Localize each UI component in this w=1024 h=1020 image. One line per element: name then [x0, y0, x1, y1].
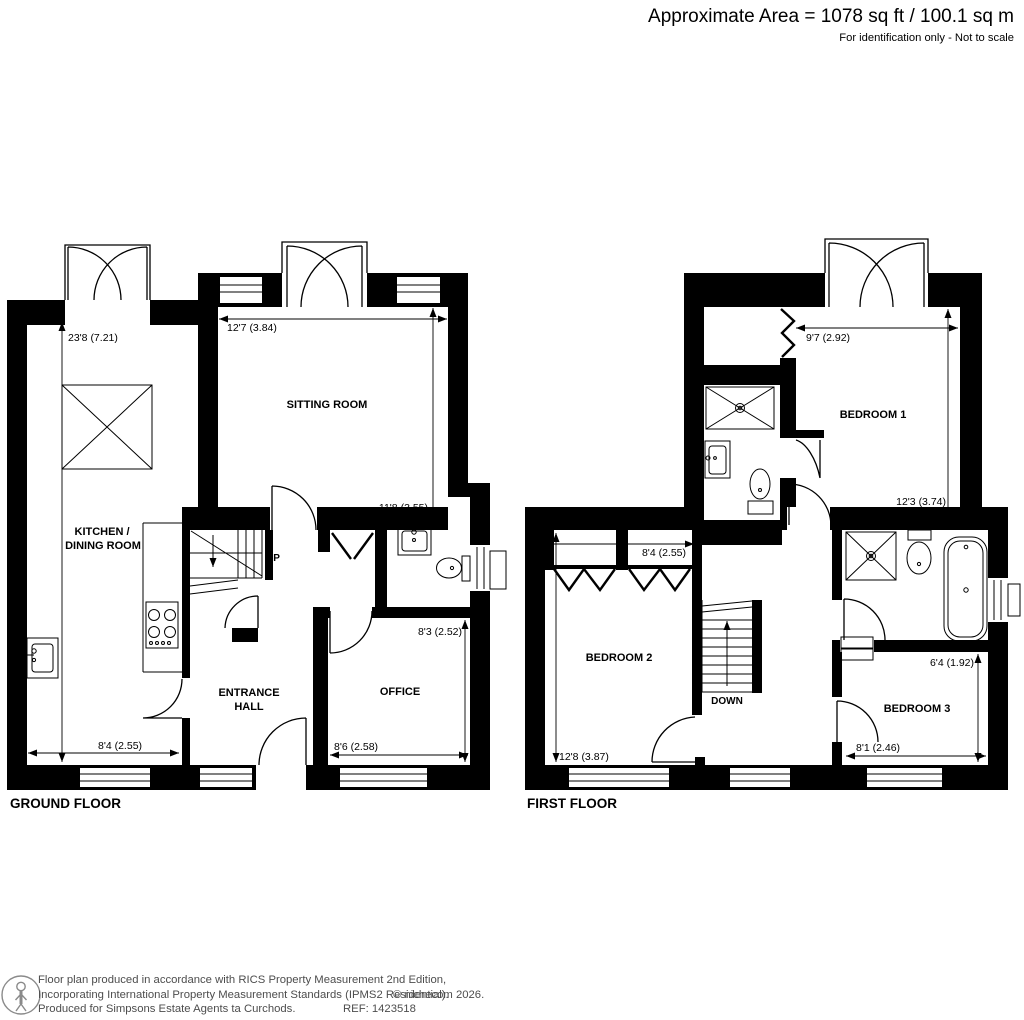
footer: Floor plan produced in accordance with R…: [2, 974, 484, 1015]
wc-basin-icon: [398, 527, 431, 555]
footer-line1: Floor plan produced in accordance with R…: [38, 974, 446, 986]
entrance-hall-label-line2: HALL: [234, 701, 264, 713]
bedroom2-label: BEDROOM 2: [586, 652, 653, 664]
footer-ref: REF: 1423518: [343, 1003, 416, 1015]
kitchen-french-door-recess: [65, 245, 150, 300]
bedroom3-label: BEDROOM 3: [884, 703, 951, 715]
first-floor-title: FIRST FLOOR: [527, 796, 617, 811]
floorplan-drawing: Approximate Area = 1078 sq ft / 100.1 sq…: [0, 0, 1024, 1020]
wc-toilet-icon: [437, 556, 471, 581]
vaulted-area-icon: [62, 385, 152, 469]
office-label: OFFICE: [380, 686, 420, 698]
kitchen-hall-door-icon: [143, 679, 182, 718]
footer-copyright: © nichecom 2026.: [393, 989, 484, 1001]
ensuite-door-icon: [796, 440, 820, 478]
understair-cupboard-door-icon: [225, 596, 258, 628]
ensuite-shower-icon: [706, 387, 774, 429]
kitchen-label-line1: KITCHEN /: [75, 526, 130, 538]
dim-sitting-depth: 11'8 (3.55): [379, 502, 428, 514]
dim-bedroom2-depth: 12'8 (3.87): [559, 751, 609, 763]
ensuite-basin-icon: [705, 441, 730, 478]
ground-floor-title: GROUND FLOOR: [10, 796, 121, 811]
dim-sitting-width: 12'7 (3.84): [227, 322, 277, 334]
first-floor-stairs: DOWN: [702, 600, 752, 707]
identification-note-text: For identification only - Not to scale: [839, 32, 1014, 44]
dim-kitchen-width: 8'4 (2.55): [98, 740, 142, 752]
bathroom-shower-icon: [846, 532, 896, 580]
dim-bedroom1-depth: 12'3 (3.74): [896, 496, 946, 508]
header: Approximate Area = 1078 sq ft / 100.1 sq…: [648, 6, 1014, 44]
footer-line3: Produced for Simpsons Estate Agents ta C…: [38, 1003, 295, 1015]
dim-bedroom2-width: 8'4 (2.55): [642, 547, 686, 559]
floorplan-page: Approximate Area = 1078 sq ft / 100.1 sq…: [0, 0, 1024, 1020]
bathroom-toilet-icon: [907, 530, 931, 574]
wc-double-doors-icon: [332, 533, 373, 559]
dim-office-width: 8'6 (2.58): [334, 741, 378, 753]
first-floor-windows: [569, 580, 1020, 781]
dim-bedroom1-width: 9'7 (2.92): [806, 332, 850, 344]
dim-kitchen-length: 23'8 (7.21): [68, 332, 118, 344]
dim-bedroom3-depth: 6'4 (1.92): [930, 657, 974, 669]
entrance-hall-label-line1: ENTRANCE: [218, 687, 279, 699]
dim-office-depth: 8'3 (2.52): [418, 626, 462, 638]
ground-floor-windows: [80, 285, 506, 781]
hob-icon: [146, 602, 178, 648]
approximate-area-text: Approximate Area = 1078 sq ft / 100.1 sq…: [648, 6, 1014, 27]
bathroom-door-icon: [844, 599, 885, 640]
kitchen-label-line2: DINING ROOM: [65, 540, 141, 552]
sitting-room-label: SITTING ROOM: [287, 399, 368, 411]
ensuite-toilet-icon: [748, 469, 773, 514]
person-icon: [2, 976, 40, 1014]
stairs-down-label: DOWN: [711, 696, 743, 707]
kitchen-french-doors-icon: [68, 247, 147, 300]
front-door-icon: [259, 718, 306, 765]
bedroom3-door-icon: [837, 701, 878, 742]
kitchen-sink-icon: [27, 638, 58, 678]
kitchen-counter: [143, 523, 182, 672]
bedroom1-label: BEDROOM 1: [840, 409, 907, 421]
footer-line2: Incorporating International Property Mea…: [38, 989, 449, 1001]
bedroom2-wardrobes: [554, 567, 692, 590]
stairs-up-label: UP: [266, 553, 280, 564]
bedroom2-door-icon: [652, 717, 697, 762]
bathtub-icon: [944, 537, 987, 641]
dim-bedroom3-width: 8'1 (2.46): [856, 742, 900, 754]
